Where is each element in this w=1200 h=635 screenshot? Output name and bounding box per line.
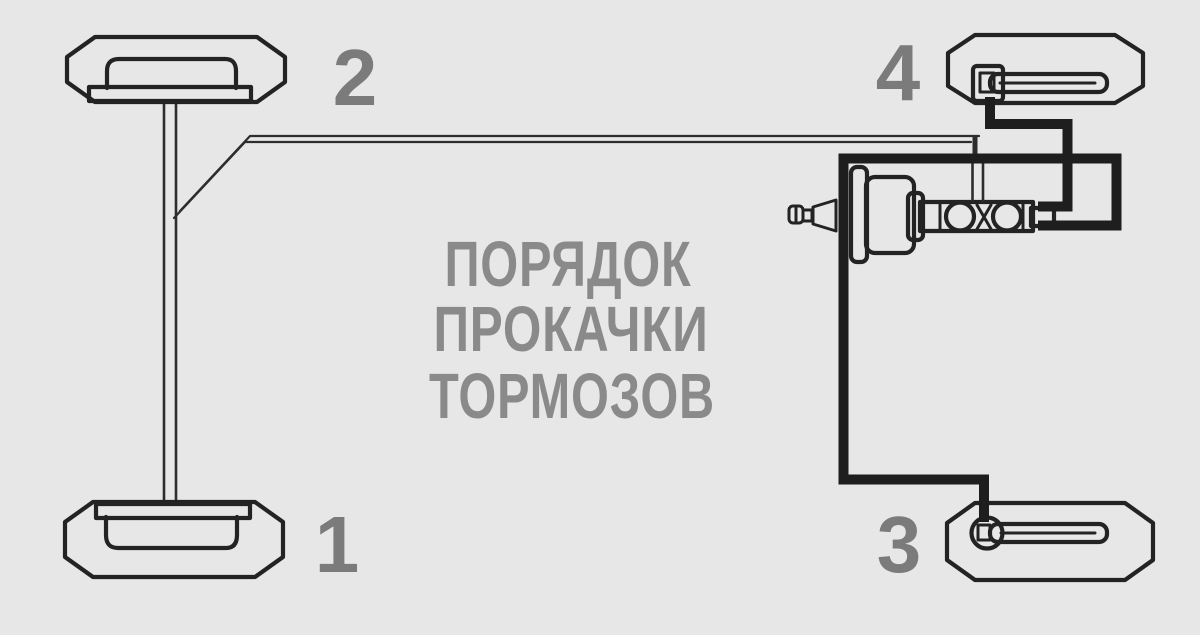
label-front-right: 4 bbox=[876, 28, 921, 117]
label-rear-left: 1 bbox=[315, 500, 360, 589]
title-line-2: ПРОКАЧКИ bbox=[434, 293, 709, 365]
diagram-title: ПОРЯДОК ПРОКАЧКИ ТОРМОЗОВ bbox=[429, 228, 715, 432]
title-line-1: ПОРЯДОК bbox=[445, 228, 692, 300]
brake-bleeding-diagram: 2 1 4 3 ПОРЯДОК ПРОКАЧКИ ТОРМОЗОВ bbox=[0, 0, 1200, 635]
title-line-3: ТОРМОЗОВ bbox=[429, 360, 715, 432]
label-front-left: 2 bbox=[333, 33, 378, 122]
label-rear-right: 3 bbox=[877, 500, 922, 589]
